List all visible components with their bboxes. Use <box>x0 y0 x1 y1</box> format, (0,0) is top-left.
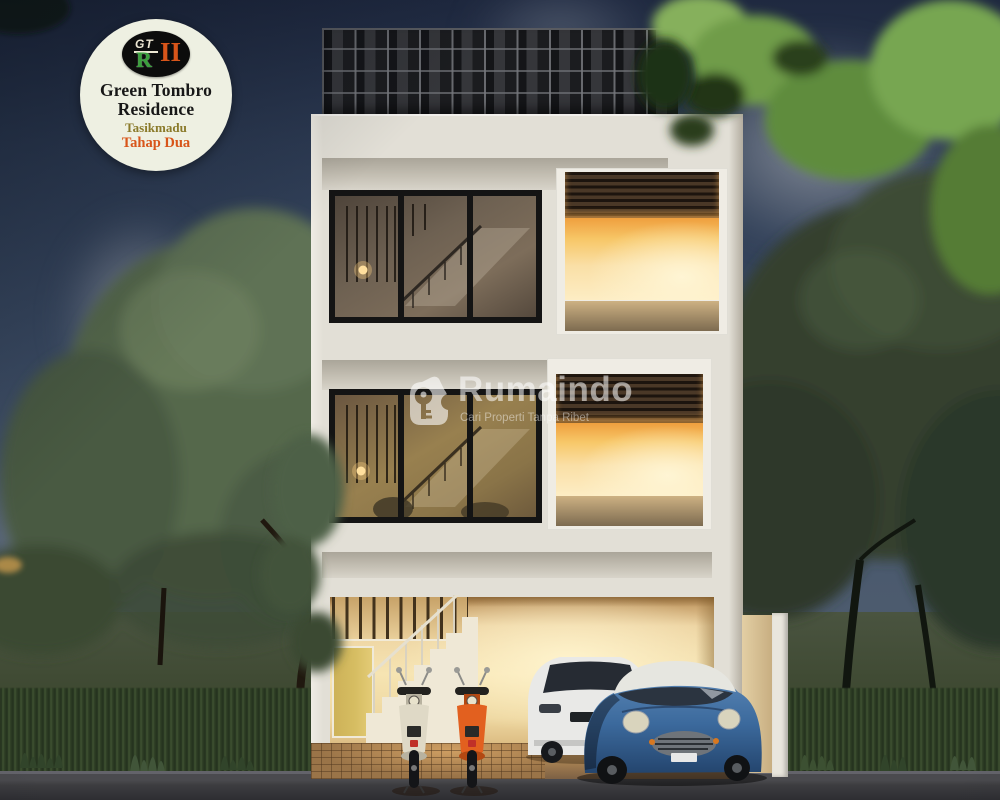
watermark-tagline: Cari Properti Tanpa Ribet <box>460 412 589 424</box>
developer-badge: GT R II Green Tombro Residence Tasikmadu… <box>80 19 232 171</box>
watermark: Rumaindo Cari Properti Tanpa Ribet <box>402 372 662 434</box>
left-tree-front-leaves <box>260 434 344 672</box>
badge-location: Tasikmadu <box>80 120 232 136</box>
gtr-logo-icon: GT R II <box>122 31 190 77</box>
badge-title-line1: Green Tombro <box>80 81 232 100</box>
badge-title: Green Tombro Residence <box>80 81 232 118</box>
logo-numeral-text: II <box>160 37 181 68</box>
badge-phase: Tahap Dua <box>80 135 232 152</box>
property-render-image: GT R II Green Tombro Residence Tasikmadu… <box>0 0 1000 800</box>
house-key-icon <box>402 374 452 430</box>
watermark-brand: Rumaindo <box>458 370 633 410</box>
logo-r-text: R <box>136 47 152 73</box>
badge-title-line2: Residence <box>80 100 232 119</box>
bright-leaves-top-right <box>652 0 1000 295</box>
